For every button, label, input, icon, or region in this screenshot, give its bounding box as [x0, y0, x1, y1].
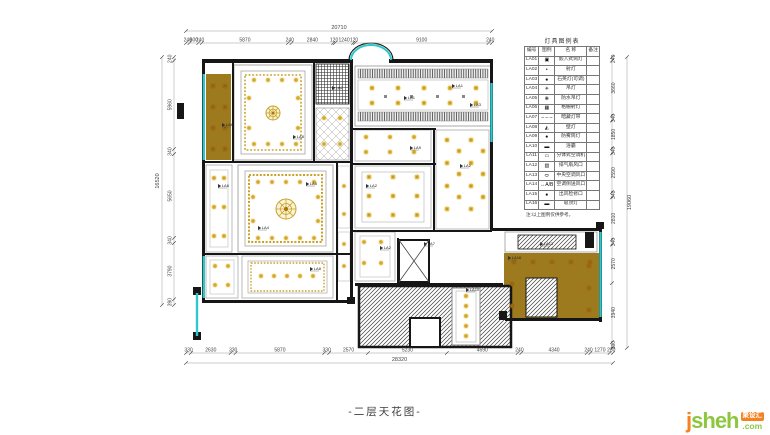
wall [202, 300, 354, 303]
wall [490, 228, 602, 231]
legend-symbol: ▦ [539, 104, 555, 114]
light-core [214, 284, 215, 285]
legend-code: LA01 [525, 56, 539, 66]
dim-label: 340 [611, 238, 617, 247]
legend-note: 注:以上图例仅供参考。 [524, 212, 600, 218]
legend-remark [587, 66, 600, 76]
light-core [380, 262, 381, 263]
light-core [286, 275, 287, 276]
light-core [212, 127, 213, 128]
light-core [339, 143, 340, 144]
lamp-tag-label: LA1 [456, 83, 464, 88]
light-core [295, 143, 296, 144]
dim-label: 3790 [167, 265, 173, 276]
legend-row: LA10▬浴霸 [525, 142, 600, 152]
legend-name: 格栅射灯 [555, 104, 587, 114]
family-stripe-bottom [358, 112, 488, 121]
watermark-logo: jsheh 聚设汇 .com [686, 410, 764, 432]
light-core [363, 241, 364, 242]
lamp-tag-flag [452, 84, 455, 88]
light-core [323, 117, 324, 118]
lamp-tag-label: LA2 [370, 183, 378, 188]
legend-symbol: ● [539, 133, 555, 143]
lamp-tag-label: LA16 [512, 255, 522, 260]
dim-label: 240 [611, 54, 617, 63]
medallion-center [271, 111, 274, 114]
legend-remark [587, 85, 600, 95]
light-core [413, 136, 414, 137]
legend-remark [587, 200, 600, 210]
legend-symbol: ⬭ [539, 171, 555, 181]
legend-header: 备注 [587, 47, 600, 57]
dim-label: 330 [184, 347, 193, 353]
dim-label: 120 [350, 37, 359, 43]
legend-row: LA11▭分体式空调机 [525, 152, 600, 162]
light-core [475, 87, 476, 88]
legend-row: LA01▣嵌入式筒灯 [525, 56, 600, 66]
terrace-hatch [526, 278, 557, 317]
dim-label: 340 [167, 147, 173, 156]
light-core [482, 150, 483, 151]
light-core [339, 117, 340, 118]
legend-row: LA06▦格栅射灯 [525, 104, 600, 114]
light-core [212, 106, 213, 107]
dim-label: 1240 [339, 37, 350, 43]
room-corridor-b [338, 232, 350, 281]
legend-row: LA16▬吸顶灯 [525, 200, 600, 210]
light-core [416, 214, 417, 215]
legend-row: LA14↔A/B空调侧送风口 [525, 181, 600, 191]
room-feature-grid [316, 64, 349, 104]
family-stripe-top [358, 69, 488, 78]
light-core [273, 275, 274, 276]
legend-symbol: ▣ [539, 56, 555, 66]
light-core [465, 305, 466, 306]
light-core [416, 176, 417, 177]
column [177, 103, 184, 119]
legend-code: LA15 [525, 190, 539, 200]
light-core [223, 235, 224, 236]
light-core [465, 325, 466, 326]
light-core [224, 85, 225, 86]
floor-plan-svg: LA6LA8LA2LA1LA1LA3LA9LA2LA5LA4LA8LA2LA16… [0, 0, 770, 435]
legend-symbol: ▬ [539, 142, 555, 152]
light-core [423, 102, 424, 103]
legend-name: 射灯 [555, 66, 587, 76]
drawing-title: -二层天花图- [348, 404, 422, 419]
legend-name: 防水吊灯 [555, 94, 587, 104]
legend-header: 编号 [525, 47, 539, 57]
legend-remark [587, 171, 600, 181]
wall [397, 238, 399, 285]
dim-label: 9100 [416, 37, 427, 43]
legend-header: 名 称 [555, 47, 587, 57]
column [499, 311, 507, 320]
legend-name: 吸顶灯 [555, 200, 587, 210]
light-core [271, 237, 272, 238]
dim-overall: 19060 [627, 195, 633, 210]
light-core [252, 196, 253, 197]
dim-label: 2810 [611, 213, 617, 224]
light-core [213, 206, 214, 207]
light-core [213, 177, 214, 178]
legend-symbol: ▨ [539, 162, 555, 172]
lamp-tag-label: LA2 [336, 85, 344, 90]
column [585, 232, 594, 248]
light-core [371, 87, 372, 88]
room-leftbot [206, 256, 238, 298]
light-core [313, 237, 314, 238]
light-core [482, 196, 483, 197]
light-core [267, 79, 268, 80]
light-core [589, 261, 590, 262]
legend-name: 防雾筒灯 [555, 133, 587, 143]
light-core [532, 261, 533, 262]
legend-remark [587, 114, 600, 124]
legend-code: LA12 [525, 162, 539, 172]
legend-name: 出风检修口 [555, 190, 587, 200]
lamp-tag-flag [218, 184, 221, 188]
wall [336, 163, 338, 303]
column [347, 297, 355, 304]
light-core [465, 295, 466, 296]
light-core [317, 196, 318, 197]
lamp-tag-label: LA9 [414, 145, 422, 150]
lamp-tag-label: LA3 [474, 102, 482, 107]
light-core [297, 127, 298, 128]
dim-label: 340 [611, 114, 617, 123]
light-core [213, 235, 214, 236]
wall [204, 59, 352, 63]
dim-label: 4340 [548, 347, 559, 353]
legend-code: LA04 [525, 85, 539, 95]
legend-code: LA14 [525, 181, 539, 191]
light-core [224, 106, 225, 107]
legend-symbol: – – – [539, 114, 555, 124]
light-core [253, 79, 254, 80]
legend-code: LA03 [525, 75, 539, 85]
light-core [458, 173, 459, 174]
legend-code: LA02 [525, 66, 539, 76]
wall [352, 230, 492, 232]
legend-symbol: ▭ [539, 152, 555, 162]
legend-row: LA08◭壁灯 [525, 123, 600, 133]
dim-overall: 16520 [155, 173, 161, 188]
light-core [343, 213, 344, 214]
lamp-tag-flag [404, 96, 407, 100]
light-core [551, 261, 552, 262]
light-core [392, 214, 393, 215]
light-core [449, 102, 450, 103]
legend-row: LA03●石英灯(可调) [525, 75, 600, 85]
legend-header: 图例 [539, 47, 555, 57]
legend-name: 暗藏灯带 [555, 114, 587, 124]
light-core [470, 185, 471, 186]
legend-name: 吊灯 [555, 85, 587, 95]
legend-row: LA15●出风检修口 [525, 190, 600, 200]
light-core [248, 97, 249, 98]
dim-label: 330 [229, 347, 238, 353]
light-core [281, 79, 282, 80]
wall [232, 62, 234, 162]
light-core [446, 208, 447, 209]
room-dining [436, 130, 489, 229]
legend-symbol: ◭ [539, 123, 555, 133]
wall [433, 128, 435, 232]
grille-square [384, 95, 387, 98]
light-core [224, 127, 225, 128]
lamp-tag-label: LA6 [222, 183, 230, 188]
light-core [458, 150, 459, 151]
dim-label: 1270 [594, 347, 605, 353]
light-core [368, 195, 369, 196]
legend-remark [587, 133, 600, 143]
lamp-tag-label: LA8 [297, 134, 305, 139]
wall [505, 318, 602, 321]
watermark-badge: 聚设汇 [741, 412, 765, 421]
light-core [465, 315, 466, 316]
lamp-tag-flag [306, 182, 309, 186]
dim-label: 3940 [611, 307, 617, 318]
legend-row: LA04✳吊灯 [525, 85, 600, 95]
legend-code: LA06 [525, 104, 539, 114]
light-core [416, 195, 417, 196]
legend-row: LA02•射灯 [525, 66, 600, 76]
lamp-tag-label: LA13 [544, 241, 554, 246]
dim-label: 2590 [611, 167, 617, 178]
lamp-tag-flag [293, 135, 296, 139]
light-core [285, 237, 286, 238]
light-core [281, 143, 282, 144]
dim-label: 240 [486, 37, 495, 43]
legend-remark [587, 75, 600, 85]
dim-label: 390 [611, 341, 617, 350]
legend-code: LA09 [525, 133, 539, 143]
lamp-tag-flag [258, 226, 261, 230]
legend-name: 分体式空调机 [555, 152, 587, 162]
light-core [295, 79, 296, 80]
room-corridor-a [338, 166, 350, 228]
light-core [224, 148, 225, 149]
lamp-tag-label: LA10 [470, 287, 480, 292]
dim-label: 340 [611, 146, 617, 155]
lamp-tag-label: LA2 [464, 163, 472, 168]
lamp-tag-flag [470, 103, 473, 107]
legend-name: 壁灯 [555, 123, 587, 133]
grille-square [436, 95, 439, 98]
legend-symbol: ✳ [539, 85, 555, 95]
lamp-tag-label: LA8 [314, 266, 322, 271]
dim-label: 3660 [611, 82, 617, 93]
legend-row: LA12▨排气扇风口 [525, 162, 600, 172]
dim-label: 5960 [167, 99, 173, 110]
light-core [363, 262, 364, 263]
light-core [446, 139, 447, 140]
watermark-tld: .com [742, 422, 762, 431]
legend-symbol: ● [539, 75, 555, 85]
dim-label: 340 [167, 236, 173, 245]
legend-symbol: ▬ [539, 200, 555, 210]
legend-name: 排气扇风口 [555, 162, 587, 172]
grille-square [462, 95, 465, 98]
dim-label: 5650 [167, 190, 173, 201]
dim-label: 120 [330, 37, 339, 43]
legend-remark [587, 181, 600, 191]
legend-row: LA09●防雾筒灯 [525, 133, 600, 143]
light-core [511, 305, 512, 306]
light-core [214, 265, 215, 266]
light-core [588, 309, 589, 310]
lamp-tag-label: LA7 [428, 241, 436, 246]
legend-code: LA07 [525, 114, 539, 124]
legend-remark [587, 104, 600, 114]
legend-row: LA05❋防水吊灯 [525, 94, 600, 104]
lamp-tag-label: LA4 [262, 225, 270, 230]
light-core [392, 176, 393, 177]
wall [355, 283, 503, 286]
room-lattice [316, 108, 349, 160]
dim-label: 5870 [239, 37, 250, 43]
light-core [389, 136, 390, 137]
light-core [365, 136, 366, 137]
dim-label: 1850 [611, 129, 617, 140]
legend-symbol: ❋ [539, 94, 555, 104]
light-core [368, 176, 369, 177]
legend-row: LA13⬭中央空调风口 [525, 171, 600, 181]
light-core [380, 241, 381, 242]
light-core [299, 275, 300, 276]
legend-table: 编号图例名 称备注 LA01▣嵌入式筒灯LA02•射灯LA03●石英灯(可调)L… [524, 46, 600, 210]
dim-label: 330 [323, 347, 332, 353]
light-core [446, 185, 447, 186]
light-core [482, 173, 483, 174]
legend-code: LA08 [525, 123, 539, 133]
lamp-tag-flag [460, 164, 463, 168]
wall [350, 59, 353, 303]
ceiling-plan-page: LA6LA8LA2LA1LA1LA3LA9LA2LA5LA4LA8LA2LA16… [0, 0, 770, 435]
legend-symbol: ● [539, 190, 555, 200]
light-core [297, 97, 298, 98]
light-core [397, 102, 398, 103]
lamp-tag-label: LA2 [384, 245, 392, 250]
light-core [212, 85, 213, 86]
legend-code: LA11 [525, 152, 539, 162]
dim-label: 4690 [477, 347, 488, 353]
light-core [299, 237, 300, 238]
light-core [449, 87, 450, 88]
legend-remark [587, 152, 600, 162]
light-core [588, 287, 589, 288]
dim-label: 240 [515, 347, 524, 353]
wall [389, 59, 493, 63]
light-core [212, 148, 213, 149]
light-core [253, 143, 254, 144]
legend-code: LA13 [525, 171, 539, 181]
light-core [446, 162, 447, 163]
legend-name: 中央空调风口 [555, 171, 587, 181]
light-core [343, 185, 344, 186]
legend-row: LA07– – –暗藏灯带 [525, 114, 600, 124]
dim-label: 2570 [611, 258, 617, 269]
light-core [227, 284, 228, 285]
legend-symbol: ↔A/B [539, 181, 555, 191]
light-core [223, 206, 224, 207]
lamp-tag-label: LA1 [408, 95, 416, 100]
light-core [588, 265, 589, 266]
light-core [257, 181, 258, 182]
legend-remark [587, 142, 600, 152]
light-core [513, 261, 514, 262]
watermark-sheh: sheh [691, 410, 738, 432]
light-core [371, 102, 372, 103]
light-core [465, 335, 466, 336]
light-core [365, 151, 366, 152]
lamp-tag-label: LA6 [226, 122, 234, 127]
light-core [248, 127, 249, 128]
light-core [343, 243, 344, 244]
lamp-tag-flag [366, 184, 369, 188]
light-core [312, 275, 313, 276]
lamp-legend: 灯具图例表 编号图例名 称备注 LA01▣嵌入式筒灯LA02•射灯LA03●石英… [524, 36, 600, 218]
light-core [252, 220, 253, 221]
light-core [299, 181, 300, 182]
wall [313, 62, 315, 162]
light-core [511, 283, 512, 284]
dim-label: 2570 [343, 347, 354, 353]
dim-overall: 20710 [331, 25, 346, 31]
light-core [343, 265, 344, 266]
dim-label: 2840 [307, 37, 318, 43]
dim-label: 240 [286, 37, 295, 43]
dim-label: 240 [584, 347, 593, 353]
light-core [368, 214, 369, 215]
dim-overall: 28320 [392, 357, 407, 363]
legend-name: 石英灯(可调) [555, 75, 587, 85]
light-core [223, 177, 224, 178]
dim-label: 240 [196, 37, 205, 43]
legend-name: 浴霸 [555, 142, 587, 152]
dim-label: 390 [167, 298, 173, 307]
legend-title: 灯具图例表 [524, 36, 600, 45]
light-core [260, 275, 261, 276]
lamp-tag-label: LA5 [310, 181, 318, 186]
dim-label: 2630 [205, 347, 216, 353]
legend-name: 空调侧送风口 [555, 181, 587, 191]
light-core [267, 143, 268, 144]
light-core [470, 208, 471, 209]
legend-remark [587, 123, 600, 133]
legend-code: LA05 [525, 94, 539, 104]
lamp-tag-flag [380, 246, 383, 250]
light-core [392, 195, 393, 196]
legend-remark [587, 190, 600, 200]
legend-name: 嵌入式筒灯 [555, 56, 587, 66]
hatch-notch [410, 318, 440, 347]
lamp-tag-flag [310, 267, 313, 271]
light-core [397, 87, 398, 88]
light-core [389, 151, 390, 152]
light-core [413, 151, 414, 152]
legend-code: LA16 [525, 200, 539, 210]
light-core [423, 87, 424, 88]
light-core [458, 196, 459, 197]
light-core [257, 237, 258, 238]
wall [352, 163, 436, 165]
legend-remark [587, 162, 600, 172]
light-core [271, 181, 272, 182]
light-core [317, 220, 318, 221]
room-kitchen [355, 232, 395, 281]
